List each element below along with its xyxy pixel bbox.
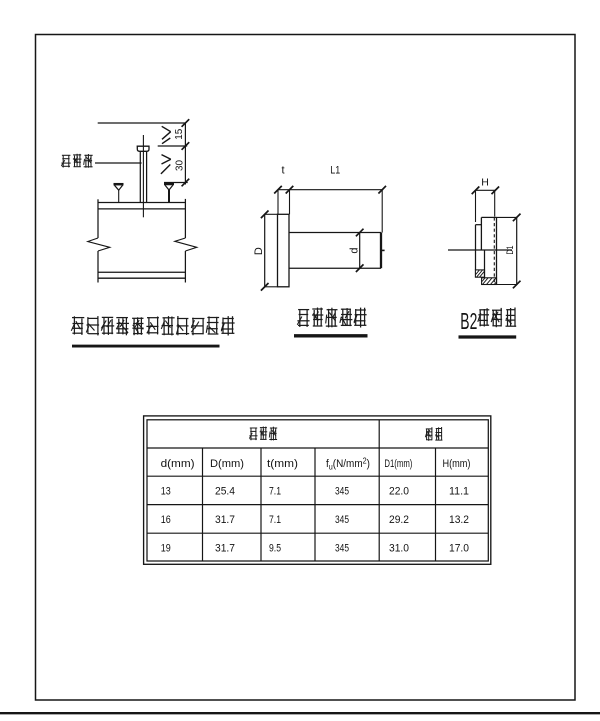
svg-text:345: 345: [335, 542, 349, 554]
svg-text:L1: L1: [330, 165, 340, 177]
svg-text:7.1: 7.1: [269, 514, 281, 526]
svg-text:D1: D1: [505, 246, 516, 255]
svg-text:31.0: 31.0: [389, 542, 409, 554]
svg-text:t(mm): t(mm): [267, 458, 298, 470]
svg-text:29.2: 29.2: [389, 514, 409, 526]
svg-text:11.1: 11.1: [449, 486, 469, 498]
svg-text:H: H: [481, 177, 489, 189]
svg-text:31.7: 31.7: [215, 542, 235, 554]
svg-text:13: 13: [161, 486, 171, 498]
svg-text:30: 30: [173, 160, 185, 171]
svg-text:9.5: 9.5: [269, 542, 281, 554]
svg-text:7.1: 7.1: [269, 486, 281, 498]
svg-text:16: 16: [161, 514, 171, 526]
svg-text:D: D: [253, 247, 265, 255]
svg-text:25.4: 25.4: [215, 486, 235, 498]
svg-text:d: d: [348, 248, 360, 254]
svg-text:31.7: 31.7: [215, 514, 235, 526]
svg-text:17.0: 17.0: [449, 542, 469, 554]
svg-text:345: 345: [335, 514, 349, 526]
svg-text:22.0: 22.0: [389, 486, 409, 498]
svg-text:D(mm): D(mm): [210, 458, 244, 470]
svg-text:fu(N/mm2): fu(N/mm2): [326, 456, 370, 471]
svg-text:d(mm): d(mm): [161, 458, 195, 470]
svg-text:13.2: 13.2: [449, 514, 469, 526]
svg-text:D1(mm): D1(mm): [384, 458, 412, 470]
svg-text:H(mm): H(mm): [443, 458, 471, 470]
svg-text:15: 15: [173, 129, 185, 140]
svg-text:345: 345: [335, 486, 349, 498]
svg-text:19: 19: [161, 542, 171, 554]
svg-text:t: t: [281, 165, 284, 177]
svg-text:B2: B2: [460, 308, 477, 334]
